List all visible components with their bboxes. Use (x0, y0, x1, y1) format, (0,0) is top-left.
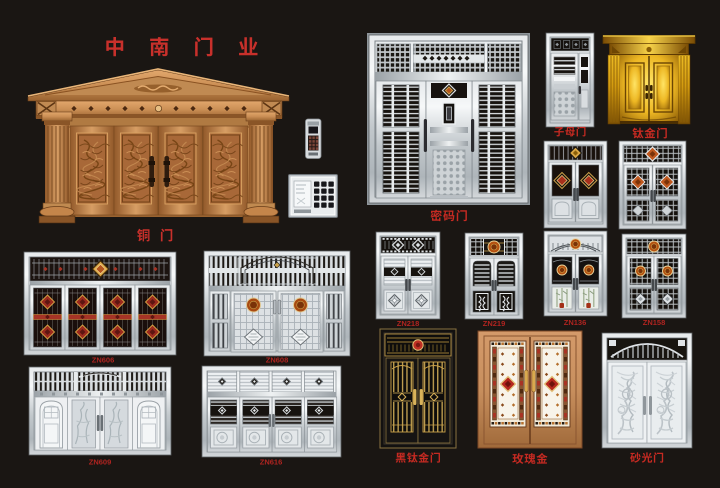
svg-text:ZN136: ZN136 (564, 318, 587, 327)
svg-text:ZN219: ZN219 (483, 319, 506, 328)
svg-text:ZN158: ZN158 (643, 318, 666, 327)
svg-text:ZN608: ZN608 (266, 356, 289, 365)
svg-text:ZN606: ZN606 (92, 356, 115, 365)
svg-text:ZN218: ZN218 (397, 319, 420, 328)
svg-text:ZN616: ZN616 (260, 458, 283, 467)
svg-text:ZN609: ZN609 (89, 458, 112, 467)
